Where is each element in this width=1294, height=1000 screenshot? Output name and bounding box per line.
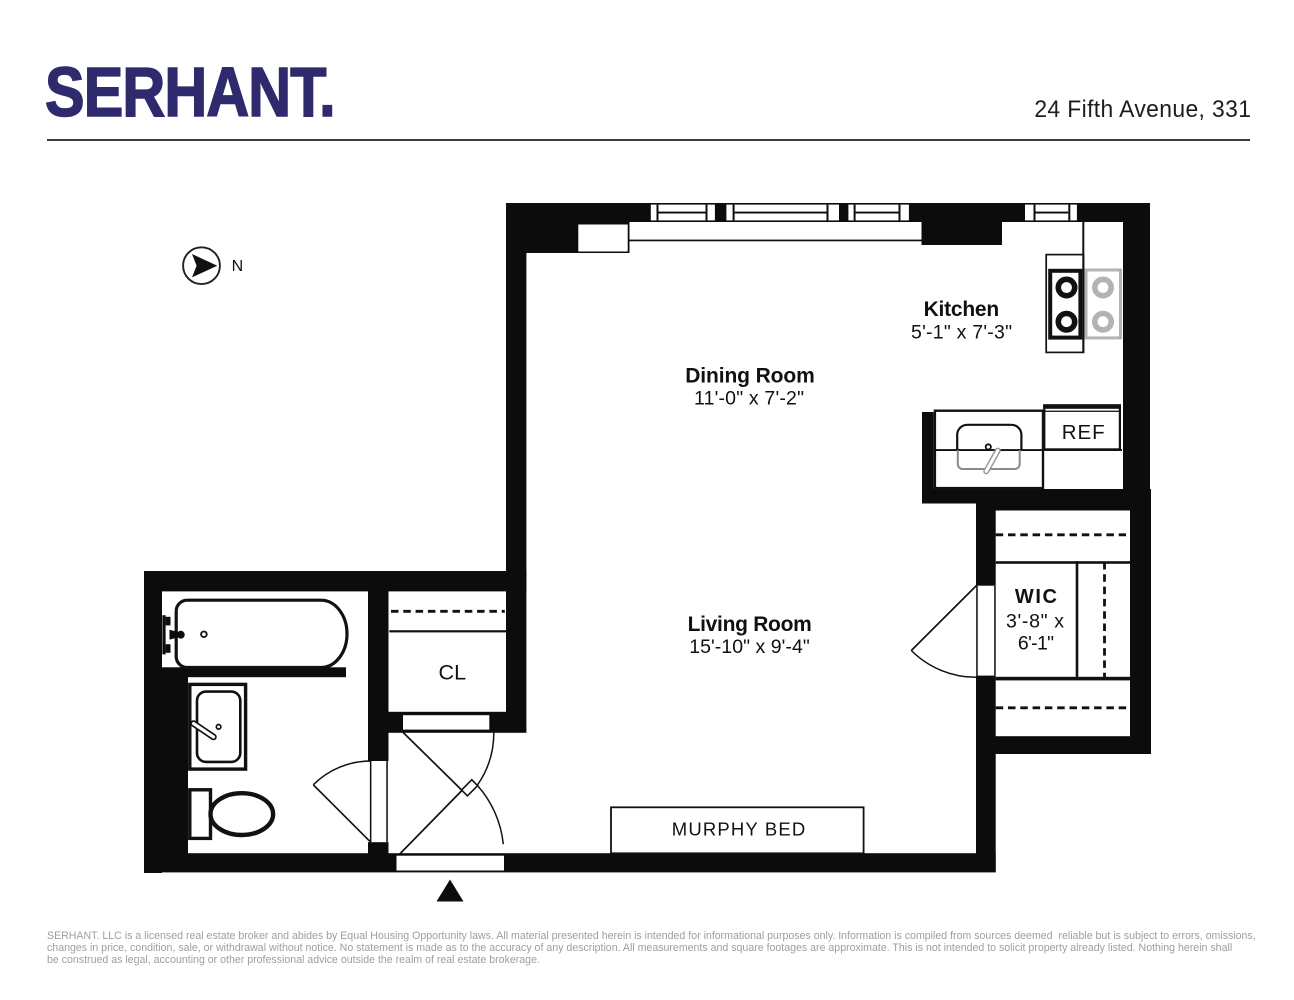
svg-text:REF: REF <box>1062 421 1106 444</box>
svg-text:11'-0" x 7'-2": 11'-0" x 7'-2" <box>694 387 804 409</box>
svg-text:Living Room: Living Room <box>688 613 812 636</box>
svg-text:Dining Room: Dining Room <box>685 364 815 387</box>
svg-text:N: N <box>232 258 244 275</box>
svg-text:CL: CL <box>439 661 467 685</box>
svg-text:15'-10" x 9'-4": 15'-10" x 9'-4" <box>689 636 810 658</box>
svg-text:MURPHY BED: MURPHY BED <box>672 818 806 839</box>
svg-text:Kitchen: Kitchen <box>924 298 1000 321</box>
svg-text:3'-8" x: 3'-8" x <box>1006 611 1064 633</box>
svg-text:5'-1" x 7'-3": 5'-1" x 7'-3" <box>911 321 1012 343</box>
svg-text:6'-1": 6'-1" <box>1018 633 1054 655</box>
svg-text:WIC: WIC <box>1015 586 1057 608</box>
